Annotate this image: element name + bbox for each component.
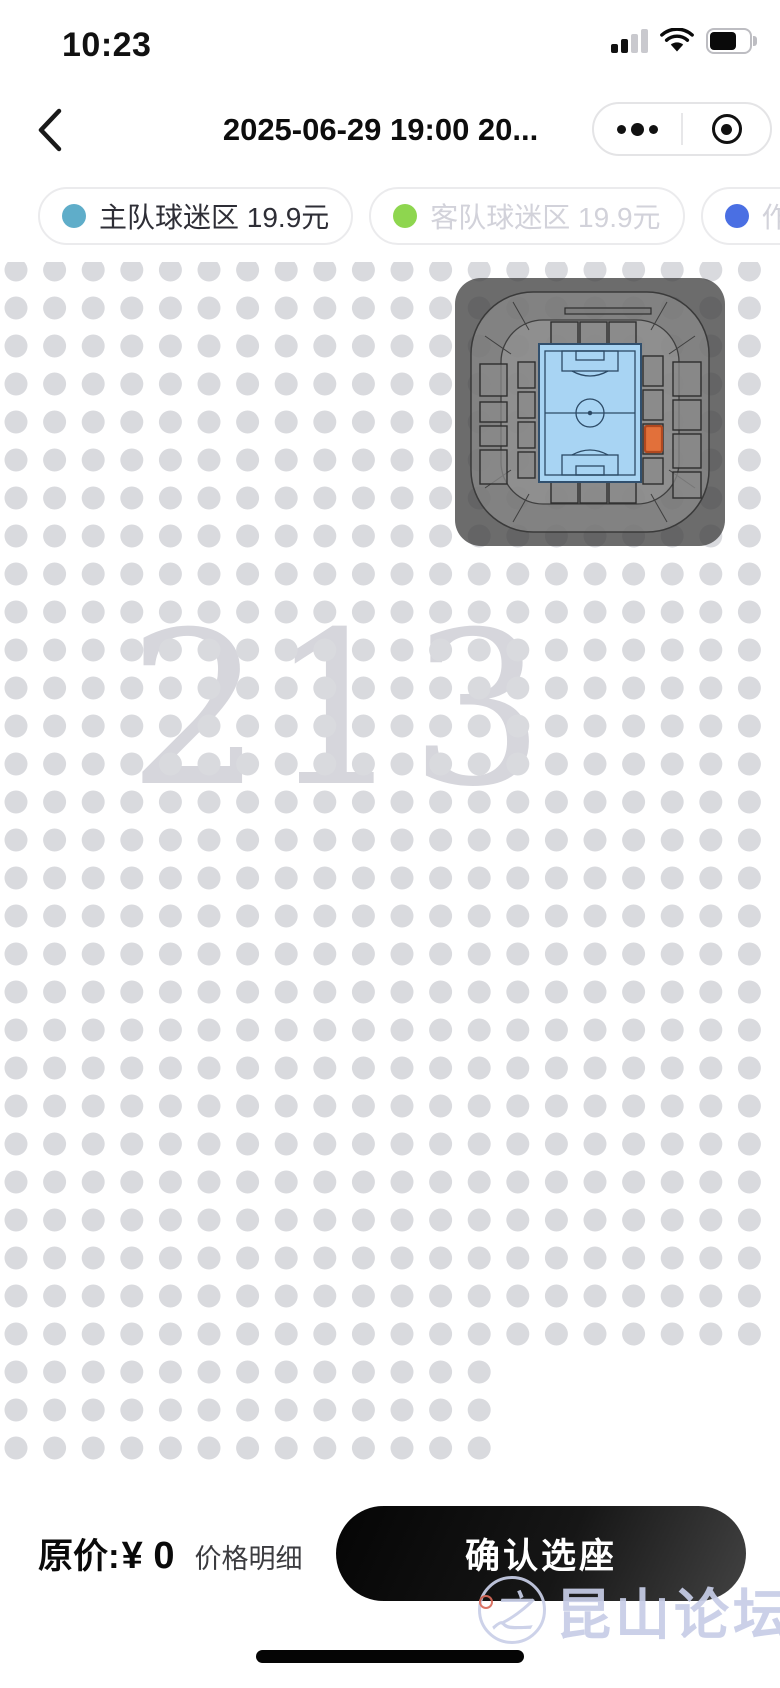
- seat-dot: [275, 943, 298, 966]
- seat-dot: [545, 1133, 568, 1156]
- seal-icon: [479, 1595, 493, 1609]
- seat-dot: [429, 1095, 452, 1118]
- seat-dot: [198, 677, 221, 700]
- seat-dot: [429, 753, 452, 776]
- seat-dot: [661, 1247, 684, 1270]
- seat-dot: [622, 867, 645, 890]
- legend-chip-label: 作废: [762, 196, 780, 236]
- seat-dot: [584, 905, 607, 928]
- seat-dot: [352, 1361, 375, 1384]
- seat-dot: [198, 1247, 221, 1270]
- seat-dot: [275, 715, 298, 738]
- seat-dot: [661, 753, 684, 776]
- seat-dot: [352, 1285, 375, 1308]
- seat-dot: [391, 297, 414, 320]
- seat-dot: [198, 1399, 221, 1422]
- seat-dot: [43, 297, 66, 320]
- legend-chip-away-fans[interactable]: 客队球迷区 19.9元: [369, 187, 684, 245]
- seat-dot: [545, 867, 568, 890]
- seat-dot: [738, 601, 761, 624]
- seat-dot: [506, 639, 529, 662]
- seat-dot: [5, 262, 28, 282]
- seat-dot: [584, 715, 607, 738]
- seat-dot: [738, 1019, 761, 1042]
- seat-dot: [468, 1209, 491, 1232]
- seat-dot: [699, 943, 722, 966]
- seat-dot: [43, 487, 66, 510]
- seat-dot: [5, 1095, 28, 1118]
- seat-dot: [275, 753, 298, 776]
- seat-dot: [236, 1399, 259, 1422]
- seat-dot: [429, 829, 452, 852]
- seat-dot: [738, 715, 761, 738]
- seat-dot: [313, 373, 336, 396]
- seat-dot: [429, 1285, 452, 1308]
- bottom-action-bar: 原价: ¥ 0 价格明细 确认选座 之 昆山论坛: [0, 1470, 780, 1688]
- seat-dot: [584, 1285, 607, 1308]
- seat-dot: [313, 1133, 336, 1156]
- seat-dot: [43, 1323, 66, 1346]
- seat-dot: [120, 1057, 143, 1080]
- seat-dot: [622, 715, 645, 738]
- seat-dot: [738, 981, 761, 1004]
- seat-dot: [506, 601, 529, 624]
- seat-dot: [584, 829, 607, 852]
- seat-dot: [120, 487, 143, 510]
- seat-dot: [429, 1209, 452, 1232]
- seat-dot: [159, 677, 182, 700]
- seat-dot: [82, 335, 105, 358]
- seat-dot: [661, 639, 684, 662]
- seat-dot: [236, 373, 259, 396]
- seat-dot: [468, 677, 491, 700]
- seat-dot: [82, 1209, 105, 1232]
- seat-dot: [468, 1399, 491, 1422]
- seat-dot: [661, 677, 684, 700]
- price-detail-link[interactable]: 价格明细: [194, 1537, 302, 1576]
- seat-dot: [738, 335, 761, 358]
- seat-dot: [275, 1133, 298, 1156]
- seat-dot: [738, 1171, 761, 1194]
- seat-dot: [429, 981, 452, 1004]
- seat-dot: [159, 639, 182, 662]
- seat-dot: [82, 1171, 105, 1194]
- seat-dot: [429, 335, 452, 358]
- seat-dot: [5, 1019, 28, 1042]
- seat-dot: [352, 487, 375, 510]
- seat-dot: [584, 981, 607, 1004]
- seat-dot: [468, 867, 491, 890]
- seat-dot: [391, 753, 414, 776]
- seat-dot: [43, 373, 66, 396]
- seat-dot: [622, 981, 645, 1004]
- seat-dot: [429, 791, 452, 814]
- seat-dot: [82, 1095, 105, 1118]
- legend-chip-home-fans[interactable]: 主队球迷区 19.9元: [38, 187, 353, 245]
- page-title: 2025-06-29 19:00 20...: [223, 112, 538, 148]
- seat-dot: [313, 525, 336, 548]
- seat-dot: [159, 1285, 182, 1308]
- seat-dot: [352, 1133, 375, 1156]
- seat-dot: [391, 1095, 414, 1118]
- seat-dot: [82, 1437, 105, 1460]
- seat-dot: [545, 981, 568, 1004]
- seat-dot: [391, 943, 414, 966]
- seat-dot: [159, 867, 182, 890]
- seat-dot: [352, 1247, 375, 1270]
- seat-dot: [120, 563, 143, 586]
- seat-dot: [313, 829, 336, 852]
- seat-dot: [275, 1285, 298, 1308]
- seat-dot: [545, 905, 568, 928]
- seat-dot: [661, 1171, 684, 1194]
- seat-dot: [275, 449, 298, 472]
- seat-dot: [313, 1323, 336, 1346]
- seat-dot: [198, 563, 221, 586]
- seat-dot: [313, 1057, 336, 1080]
- seat-dot: [275, 411, 298, 434]
- seat-dot: [236, 1323, 259, 1346]
- seat-dot: [738, 829, 761, 852]
- seat-dot: [43, 1057, 66, 1080]
- seat-dot: [506, 1133, 529, 1156]
- seat-dot: [699, 1057, 722, 1080]
- seat-dot: [622, 905, 645, 928]
- seat-dot: [738, 677, 761, 700]
- seat-dot: [43, 449, 66, 472]
- seat-dot: [352, 677, 375, 700]
- forum-logo-icon: 之: [478, 1576, 546, 1644]
- seat-dot: [468, 1323, 491, 1346]
- seat-dot: [313, 335, 336, 358]
- seat-dot: [352, 905, 375, 928]
- more-menu-button[interactable]: [594, 104, 681, 154]
- seat-dot: [468, 1133, 491, 1156]
- seat-dot: [275, 829, 298, 852]
- seat-dot: [352, 1437, 375, 1460]
- seat-dot: [120, 943, 143, 966]
- seat-dot: [120, 981, 143, 1004]
- seat-dot: [43, 791, 66, 814]
- seat-dot: [43, 262, 66, 282]
- seat-dot: [622, 601, 645, 624]
- seat-dot: [120, 525, 143, 548]
- seat-dot: [159, 262, 182, 282]
- seat-dot: [391, 601, 414, 624]
- seat-dot: [43, 943, 66, 966]
- seat-dot: [159, 981, 182, 1004]
- seat-dot: [429, 1057, 452, 1080]
- seat-dot: [236, 867, 259, 890]
- seat-dot: [313, 487, 336, 510]
- seat-dot: [468, 1095, 491, 1118]
- seat-dot: [43, 1399, 66, 1422]
- seat-dot: [198, 753, 221, 776]
- seat-dot: [352, 525, 375, 548]
- seat-dot: [738, 867, 761, 890]
- seat-dot: [699, 791, 722, 814]
- seat-dot: [43, 905, 66, 928]
- seat-dot: [313, 297, 336, 320]
- seat-dot: [275, 601, 298, 624]
- seat-dot: [738, 1095, 761, 1118]
- seat-dot: [661, 1133, 684, 1156]
- seat-dot: [738, 262, 761, 282]
- seat-dot: [352, 715, 375, 738]
- seat-dot: [82, 525, 105, 548]
- seat-dot: [43, 981, 66, 1004]
- seat-dot: [391, 335, 414, 358]
- seat-dot: [506, 981, 529, 1004]
- seat-dot: [584, 791, 607, 814]
- seat-dot: [352, 943, 375, 966]
- seat-dot: [738, 753, 761, 776]
- seat-dot: [622, 1247, 645, 1270]
- seat-dot: [313, 411, 336, 434]
- seat-dot: [82, 943, 105, 966]
- seat-dot: [5, 1399, 28, 1422]
- seat-dot: [429, 1247, 452, 1270]
- seat-dot: [5, 1247, 28, 1270]
- seat-dot: [738, 297, 761, 320]
- seat-dot: [82, 1285, 105, 1308]
- seat-dot: [43, 601, 66, 624]
- seat-dot: [275, 487, 298, 510]
- seat-dot: [506, 791, 529, 814]
- seat-dot: [198, 1323, 221, 1346]
- seat-dot: [468, 1019, 491, 1042]
- seat-dot: [661, 715, 684, 738]
- seat-dot: [468, 791, 491, 814]
- seat-dot: [738, 563, 761, 586]
- seat-dot: [5, 1209, 28, 1232]
- seat-dot: [5, 1361, 28, 1384]
- seat-dot: [506, 905, 529, 928]
- seat-dot: [391, 1285, 414, 1308]
- seat-dot: [545, 1171, 568, 1194]
- seat-dot: [738, 487, 761, 510]
- seat-dot: [391, 563, 414, 586]
- seat-dot: [352, 1057, 375, 1080]
- seat-dot: [506, 1285, 529, 1308]
- seat-dot: [120, 715, 143, 738]
- seat-dot: [661, 1209, 684, 1232]
- seat-dot: [236, 335, 259, 358]
- seat-dot: [275, 297, 298, 320]
- back-button[interactable]: [24, 104, 76, 156]
- seat-dot: [313, 867, 336, 890]
- seat-dot: [584, 601, 607, 624]
- seat-dot: [198, 335, 221, 358]
- seat-dot: [236, 297, 259, 320]
- seat-dot: [120, 411, 143, 434]
- seat-dot: [506, 943, 529, 966]
- seat-dot: [313, 1437, 336, 1460]
- seat-dot: [43, 411, 66, 434]
- seat-dot: [352, 601, 375, 624]
- seat-dot: [622, 563, 645, 586]
- seat-dot: [275, 335, 298, 358]
- seat-dot: [313, 262, 336, 282]
- seat-dot: [545, 1095, 568, 1118]
- seat-dot: [506, 867, 529, 890]
- seat-dot: [198, 867, 221, 890]
- seat-dot: [82, 411, 105, 434]
- seat-dot: [545, 1209, 568, 1232]
- seat-dot: [82, 715, 105, 738]
- seat-dot: [738, 525, 761, 548]
- seat-dot: [275, 905, 298, 928]
- seat-dot: [352, 1095, 375, 1118]
- seat-dot: [82, 677, 105, 700]
- seat-dot: [43, 1285, 66, 1308]
- seat-dot: [120, 639, 143, 662]
- seat-dot: [198, 1437, 221, 1460]
- seat-dot: [429, 1133, 452, 1156]
- seat-dot: [275, 1209, 298, 1232]
- seat-dot: [699, 753, 722, 776]
- seat-dot: [120, 335, 143, 358]
- seat-dot: [738, 1285, 761, 1308]
- seat-dot: [5, 1171, 28, 1194]
- seat-dot: [545, 829, 568, 852]
- seat-dot: [5, 335, 28, 358]
- stadium-minimap[interactable]: [455, 278, 725, 546]
- seat-dot: [159, 1399, 182, 1422]
- seat-dot: [43, 1133, 66, 1156]
- seat-dot: [352, 1399, 375, 1422]
- seat-dot: [198, 1285, 221, 1308]
- original-price-label: 原价:: [38, 1528, 120, 1579]
- seat-dot: [5, 753, 28, 776]
- seat-dot: [198, 297, 221, 320]
- seat-dot: [738, 449, 761, 472]
- seat-dot: [661, 829, 684, 852]
- seat-dot: [699, 1019, 722, 1042]
- seat-dot: [120, 449, 143, 472]
- seat-dot: [352, 1209, 375, 1232]
- seat-dot: [120, 1285, 143, 1308]
- seat-dot: [120, 1133, 143, 1156]
- seat-dot: [82, 1019, 105, 1042]
- seat-dot: [391, 262, 414, 282]
- seat-dot: [120, 867, 143, 890]
- legend-chip-void[interactable]: 作废: [701, 187, 780, 245]
- seat-dot: [198, 487, 221, 510]
- seat-dot: [545, 1285, 568, 1308]
- seat-dot: [82, 753, 105, 776]
- seat-dot: [352, 262, 375, 282]
- seat-dot: [43, 525, 66, 548]
- close-home-button[interactable]: [683, 104, 770, 154]
- seat-dot: [391, 715, 414, 738]
- seat-dot: [120, 1019, 143, 1042]
- seat-dot: [352, 1323, 375, 1346]
- away-fans-color-dot: [393, 204, 417, 228]
- seat-dot: [506, 1019, 529, 1042]
- seat-dot: [82, 487, 105, 510]
- seat-dot: [120, 373, 143, 396]
- seat-dot: [5, 449, 28, 472]
- seat-dot: [622, 677, 645, 700]
- seat-dot: [275, 1019, 298, 1042]
- selected-section-213[interactable]: [645, 426, 662, 452]
- void-color-dot: [725, 204, 749, 228]
- seat-dot: [236, 1247, 259, 1270]
- seat-dot: [622, 1019, 645, 1042]
- seat-dot: [43, 1209, 66, 1232]
- seat-dot: [236, 1019, 259, 1042]
- seat-dot: [661, 1019, 684, 1042]
- seat-dot: [738, 373, 761, 396]
- seat-dot: [159, 715, 182, 738]
- seat-dot: [699, 867, 722, 890]
- seat-dot: [82, 601, 105, 624]
- seat-dot: [275, 563, 298, 586]
- seat-dot: [275, 981, 298, 1004]
- seat-dot: [313, 639, 336, 662]
- seat-dot: [352, 449, 375, 472]
- seat-dot: [699, 1247, 722, 1270]
- seat-dot: [622, 829, 645, 852]
- seat-dot: [198, 262, 221, 282]
- seat-dot: [120, 1247, 143, 1270]
- seat-dot: [584, 563, 607, 586]
- seat-dot: [5, 715, 28, 738]
- seat-dot: [82, 829, 105, 852]
- seat-dot: [43, 753, 66, 776]
- seat-dot: [468, 1437, 491, 1460]
- back-chevron-icon: [37, 108, 63, 152]
- seat-dot: [159, 1361, 182, 1384]
- seat-dot: [391, 487, 414, 510]
- seat-dot: [468, 1361, 491, 1384]
- seat-dot: [391, 981, 414, 1004]
- seat-dot: [699, 715, 722, 738]
- seat-dot: [82, 791, 105, 814]
- seat-dot: [198, 525, 221, 548]
- seat-dot: [506, 1209, 529, 1232]
- seat-dot: [275, 867, 298, 890]
- seat-dot: [429, 449, 452, 472]
- seat-dot: [429, 297, 452, 320]
- seat-dot: [699, 829, 722, 852]
- seat-dot: [391, 1057, 414, 1080]
- seat-dot: [236, 943, 259, 966]
- seat-dot: [275, 677, 298, 700]
- seat-dot: [468, 753, 491, 776]
- seat-dot: [236, 981, 259, 1004]
- seat-dot: [236, 715, 259, 738]
- seat-dot: [429, 867, 452, 890]
- seat-dot: [236, 411, 259, 434]
- seat-dot: [43, 1019, 66, 1042]
- seat-dot: [468, 601, 491, 624]
- seat-dot: [82, 563, 105, 586]
- seat-dot: [198, 791, 221, 814]
- seat-dot: [5, 1133, 28, 1156]
- seat-dot: [506, 563, 529, 586]
- seat-dot: [120, 262, 143, 282]
- seat-dot: [159, 905, 182, 928]
- seat-dot: [429, 1361, 452, 1384]
- seat-dot: [120, 1323, 143, 1346]
- seat-dot: [275, 1247, 298, 1270]
- seat-dot: [313, 1019, 336, 1042]
- seat-dot: [159, 563, 182, 586]
- seat-dot: [468, 905, 491, 928]
- seat-dot: [391, 1247, 414, 1270]
